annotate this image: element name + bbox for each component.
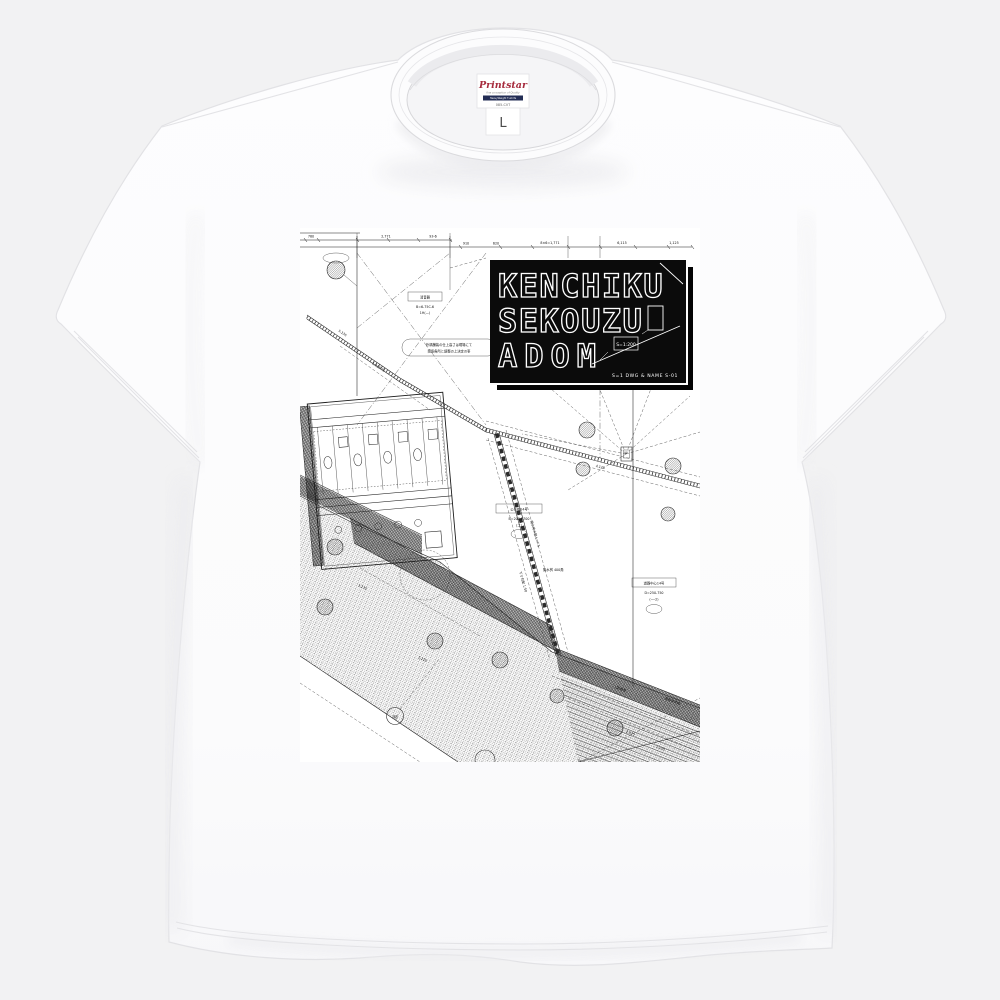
logo-line-2: SEKOUZU: [498, 302, 643, 340]
svg-text:780: 780: [308, 235, 314, 239]
logo-line-3: ADOM: [498, 337, 603, 375]
svg-text:公共桝14号: 公共桝14号: [510, 507, 528, 512]
logo-caption: S=1 DWG & NAME S-01: [612, 373, 678, 379]
product-photo: Printstar fine conception of Quality Hea…: [0, 0, 1000, 1000]
svg-text:B=200-2700: B=200-2700: [509, 517, 530, 521]
svg-text:6,115: 6,115: [617, 241, 626, 245]
svg-text:外構舗装の仕上高さは現場にて: 外構舗装の仕上高さは現場にて: [426, 342, 472, 347]
svg-text:集水桝 400角: 集水桝 400角: [543, 567, 564, 572]
print-design: 780 2,771 93-6 910 620 8×6=1,771 6,115 1…: [300, 228, 700, 762]
size-tag: L: [486, 108, 520, 135]
logo-line-1: KENCHIKU: [498, 267, 664, 305]
svg-text:道路中心14号: 道路中心14号: [644, 581, 665, 586]
svg-text:A8: A8: [391, 715, 398, 720]
svg-text:1,125: 1,125: [669, 241, 678, 245]
svg-text:D=250-750: D=250-750: [644, 591, 663, 595]
svg-text:93-6: 93-6: [429, 235, 436, 239]
svg-text:(一-2): (一-2): [649, 598, 658, 602]
logo-minibox-text: S=1:200: [616, 342, 636, 348]
svg-text:1H(—): 1H(—): [420, 311, 430, 315]
brand-name: Printstar: [478, 80, 528, 91]
brand-tagline: fine conception of Quality: [486, 91, 520, 95]
svg-text:(二): (二): [516, 524, 522, 528]
svg-text:消音器: 消音器: [420, 295, 431, 300]
svg-text:2,771: 2,771: [381, 235, 390, 239]
svg-text:910: 910: [463, 242, 469, 246]
size-value: L: [499, 116, 507, 131]
svg-text:関係各所と調整の上決定の事: 関係各所と調整の上決定の事: [428, 349, 472, 354]
brand-model: 085-CVT: [496, 103, 511, 107]
svg-text:620: 620: [493, 242, 499, 246]
brand-bar-text: HeavyWeight T-shirts: [490, 96, 517, 100]
svg-text:B=6-75C-6: B=6-75C-6: [416, 305, 434, 309]
brand-tag: Printstar fine conception of Quality Hea…: [477, 74, 529, 108]
svg-text:8×6=1,771: 8×6=1,771: [540, 241, 559, 245]
logo-plate: KENCHIKU SEKOUZU ADOM S=1:200 S=1 DWG & …: [490, 260, 686, 383]
logo-plate-face: KENCHIKU SEKOUZU ADOM S=1:200 S=1 DWG & …: [490, 260, 688, 385]
